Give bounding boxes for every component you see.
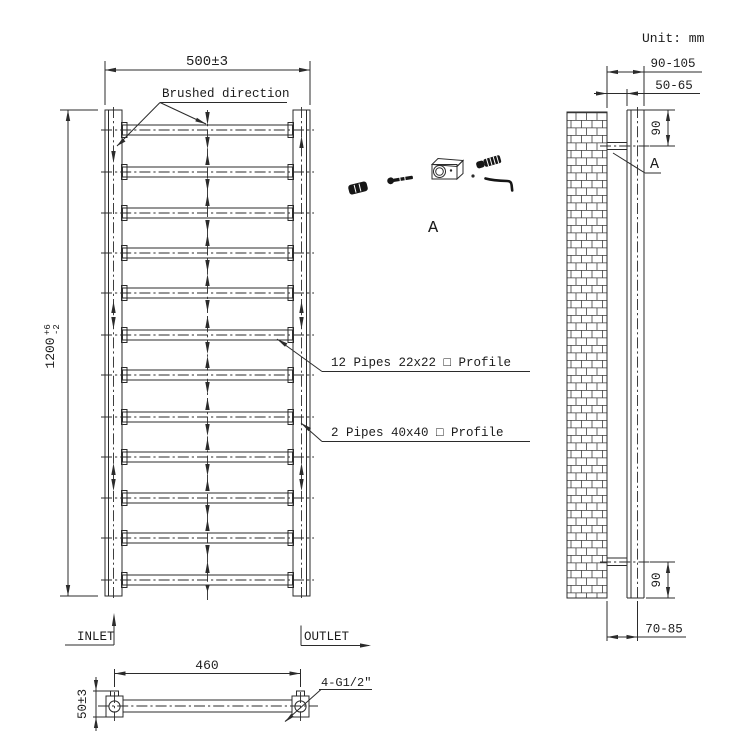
side-view: 90-105 50-65 90 90 <box>567 57 702 641</box>
outlet-callout: OUTLET <box>301 626 371 648</box>
direction-arrow <box>205 179 209 191</box>
direction-arrow <box>205 194 209 206</box>
side-profile <box>627 107 644 601</box>
height-tol-minus: -2 <box>52 324 62 335</box>
direction-arrow <box>205 112 209 125</box>
left-column <box>105 107 122 599</box>
wall-gap-dim-text: 50-65 <box>655 79 693 93</box>
direction-arrow <box>299 463 303 475</box>
brushed-direction-label: Brushed direction <box>162 87 290 101</box>
bracket-block-icon <box>432 159 463 180</box>
width-dim-text: 500±3 <box>186 54 228 70</box>
direction-arrow <box>205 137 209 149</box>
direction-arrow <box>205 300 209 312</box>
direction-arrow <box>205 545 209 557</box>
direction-arrow <box>205 356 209 368</box>
top-bracket-dim-text: 90 <box>650 120 664 135</box>
direction-arrow <box>205 382 209 394</box>
small-pipes-callout: 12 Pipes 22x22 □ Profile <box>277 339 530 372</box>
direction-arrow <box>205 464 209 476</box>
outlet-label: OUTLET <box>304 630 350 644</box>
technical-drawing: 500±3 1200 +6 -2 Brushed direction <box>0 0 750 750</box>
direction-arrow <box>299 136 303 148</box>
unit-label: Unit: mm <box>642 31 705 46</box>
direction-arrow <box>205 505 209 517</box>
dimension-centers: 460 <box>115 658 301 687</box>
height-dim-text: 1200 <box>43 337 58 368</box>
direction-arrow <box>299 479 303 491</box>
brushed-direction-callout: Brushed direction <box>117 87 290 146</box>
large-pipes-callout: 2 Pipes 40x40 □ Profile <box>301 423 530 442</box>
direction-arrow <box>111 479 115 491</box>
direction-arrow <box>111 463 115 475</box>
bottom-view: 460 50±3 4-G1/2″ <box>76 658 372 731</box>
set-screw-dot-icon <box>471 174 474 177</box>
direction-arrow <box>299 317 303 329</box>
direction-arrow <box>299 301 303 313</box>
grub-screw-icon <box>348 181 369 195</box>
direction-arrow <box>205 438 209 450</box>
screw-icon <box>387 174 414 185</box>
bottom-bracket-dim-text: 90 <box>650 572 664 587</box>
large-pipes-label: 2 Pipes 40x40 □ Profile <box>331 426 504 440</box>
direction-arrow <box>205 234 209 246</box>
direction-arrow <box>111 151 115 163</box>
dimension-wall-gap: 50-65 <box>594 79 700 106</box>
dimension-wall-to-center: 70-85 <box>607 601 686 641</box>
inlet-label: INLET <box>77 630 115 644</box>
small-pipes-label: 12 Pipes 22x22 □ Profile <box>331 356 511 370</box>
direction-arrow <box>205 398 209 410</box>
wall-to-front-dim-text: 90-105 <box>650 57 695 71</box>
direction-arrow <box>205 519 209 531</box>
centers-dim-text: 460 <box>195 658 218 673</box>
direction-arrow <box>205 424 209 436</box>
right-fitting <box>292 691 309 721</box>
allen-key-icon <box>486 179 513 191</box>
radiator-spec-drawing: 500±3 1200 +6 -2 Brushed direction <box>0 0 750 750</box>
thread-callout: 4-G1/2″ <box>285 676 372 722</box>
inlet-callout: INLET <box>65 613 116 645</box>
direction-arrow <box>111 317 115 329</box>
detail-a-callout-text: A <box>650 156 659 173</box>
brushed-direction-arrows <box>111 112 303 592</box>
wall-to-center-dim-text: 70-85 <box>645 623 683 637</box>
detail-a-callout: A <box>613 153 661 173</box>
hardware-detail: A <box>348 155 513 238</box>
dimension-height: 1200 +6 -2 <box>43 110 98 596</box>
front-view: 500±3 1200 +6 -2 Brushed direction <box>43 54 530 648</box>
depth-dim-text: 50±3 <box>76 689 90 719</box>
dimension-bottom-bracket: 90 <box>646 562 675 598</box>
direction-arrow <box>111 301 115 313</box>
direction-arrow <box>205 274 209 286</box>
direction-arrow <box>205 260 209 272</box>
thread-label: 4-G1/2″ <box>321 676 371 690</box>
dimension-depth: 50±3 <box>76 677 112 731</box>
direction-arrow <box>205 342 209 354</box>
direction-arrow <box>205 561 209 573</box>
wall-plug-icon <box>475 155 501 170</box>
hardware-detail-label: A <box>428 219 439 238</box>
direction-arrow <box>205 220 209 232</box>
direction-arrow <box>205 316 209 328</box>
direction-arrow <box>205 585 209 592</box>
dimension-top-bracket: 90 <box>644 110 675 146</box>
wall-section <box>567 112 607 598</box>
direction-arrow <box>205 479 209 491</box>
direction-arrow <box>205 153 209 165</box>
